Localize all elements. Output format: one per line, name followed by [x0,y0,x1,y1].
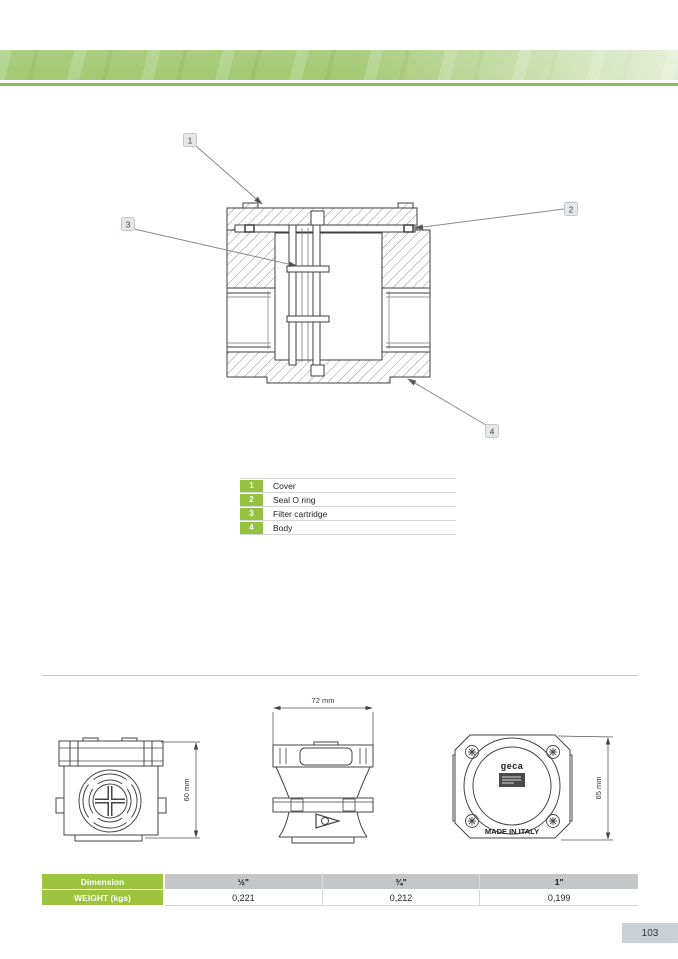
spec-weight-value-2: 0,212 [323,890,481,906]
spec-weight-value-1: 0,221 [165,890,323,906]
callout-2: 2 [565,203,578,216]
legend-num-badge: 4 [240,522,263,534]
dimension-views-drawing: 60 mm 72 mm [40,690,640,860]
spec-dimension-header: Dimension [42,874,165,890]
side-width-dim-label: 72 mm [312,696,335,705]
brand-logo-text: geca [501,761,524,771]
callout-4-num: 4 [490,427,495,437]
legend-row: 4 Body [240,521,456,535]
legend-row: 1 Cover [240,479,456,493]
header-banner [0,50,678,80]
legend-num-badge: 2 [240,494,263,506]
callout-3: 3 [122,218,135,231]
spec-size-col-3: 1" [480,874,638,890]
top-height-dim-label: 65 mm [594,777,603,800]
seal-o-ring-right [404,225,413,232]
callout-3-num: 3 [126,220,131,230]
flow-direction-icon [316,814,339,828]
header-rule [0,83,678,86]
spec-size-col-1: ½" [165,874,323,890]
spec-size-col-2: ¾" [323,874,481,890]
legend-label: Cover [263,481,296,491]
legend-row: 3 Filter cartridge [240,507,456,521]
cross-section-drawing: 1 2 3 4 [80,125,600,445]
seal-o-ring-left [245,225,254,232]
callout-1: 1 [184,134,197,147]
legend-label: Body [263,523,292,533]
spec-table: Dimension ½" ¾" 1" WEIGHT (kgs) 0,221 0,… [42,874,638,906]
callout-1-num: 1 [188,136,193,146]
front-height-dim-label: 60 mm [182,779,191,802]
legend-row: 2 Seal O ring [240,493,456,507]
side-view [273,742,373,843]
section-divider [42,675,638,676]
callout-4: 4 [486,425,499,438]
page-number: 103 [622,923,678,943]
made-in-italy-text: MADE IN ITALY [485,827,539,836]
spec-weight-value-3: 0,199 [480,890,638,906]
catalog-page: 1 2 3 4 1 Cover 2 Seal O ring [0,0,678,959]
legend-label: Filter cartridge [263,509,327,519]
legend-num-badge: 1 [240,480,263,492]
filter-section-body [227,203,430,383]
spec-weight-header: WEIGHT (kgs) [42,890,165,906]
parts-legend: 1 Cover 2 Seal O ring 3 Filter cartridge… [240,478,456,535]
top-view [453,735,572,838]
legend-num-badge: 3 [240,508,263,520]
product-label [499,773,525,787]
side-view-dimension [273,708,373,746]
front-view [56,738,166,841]
legend-label: Seal O ring [263,495,316,505]
callout-2-num: 2 [569,205,574,215]
